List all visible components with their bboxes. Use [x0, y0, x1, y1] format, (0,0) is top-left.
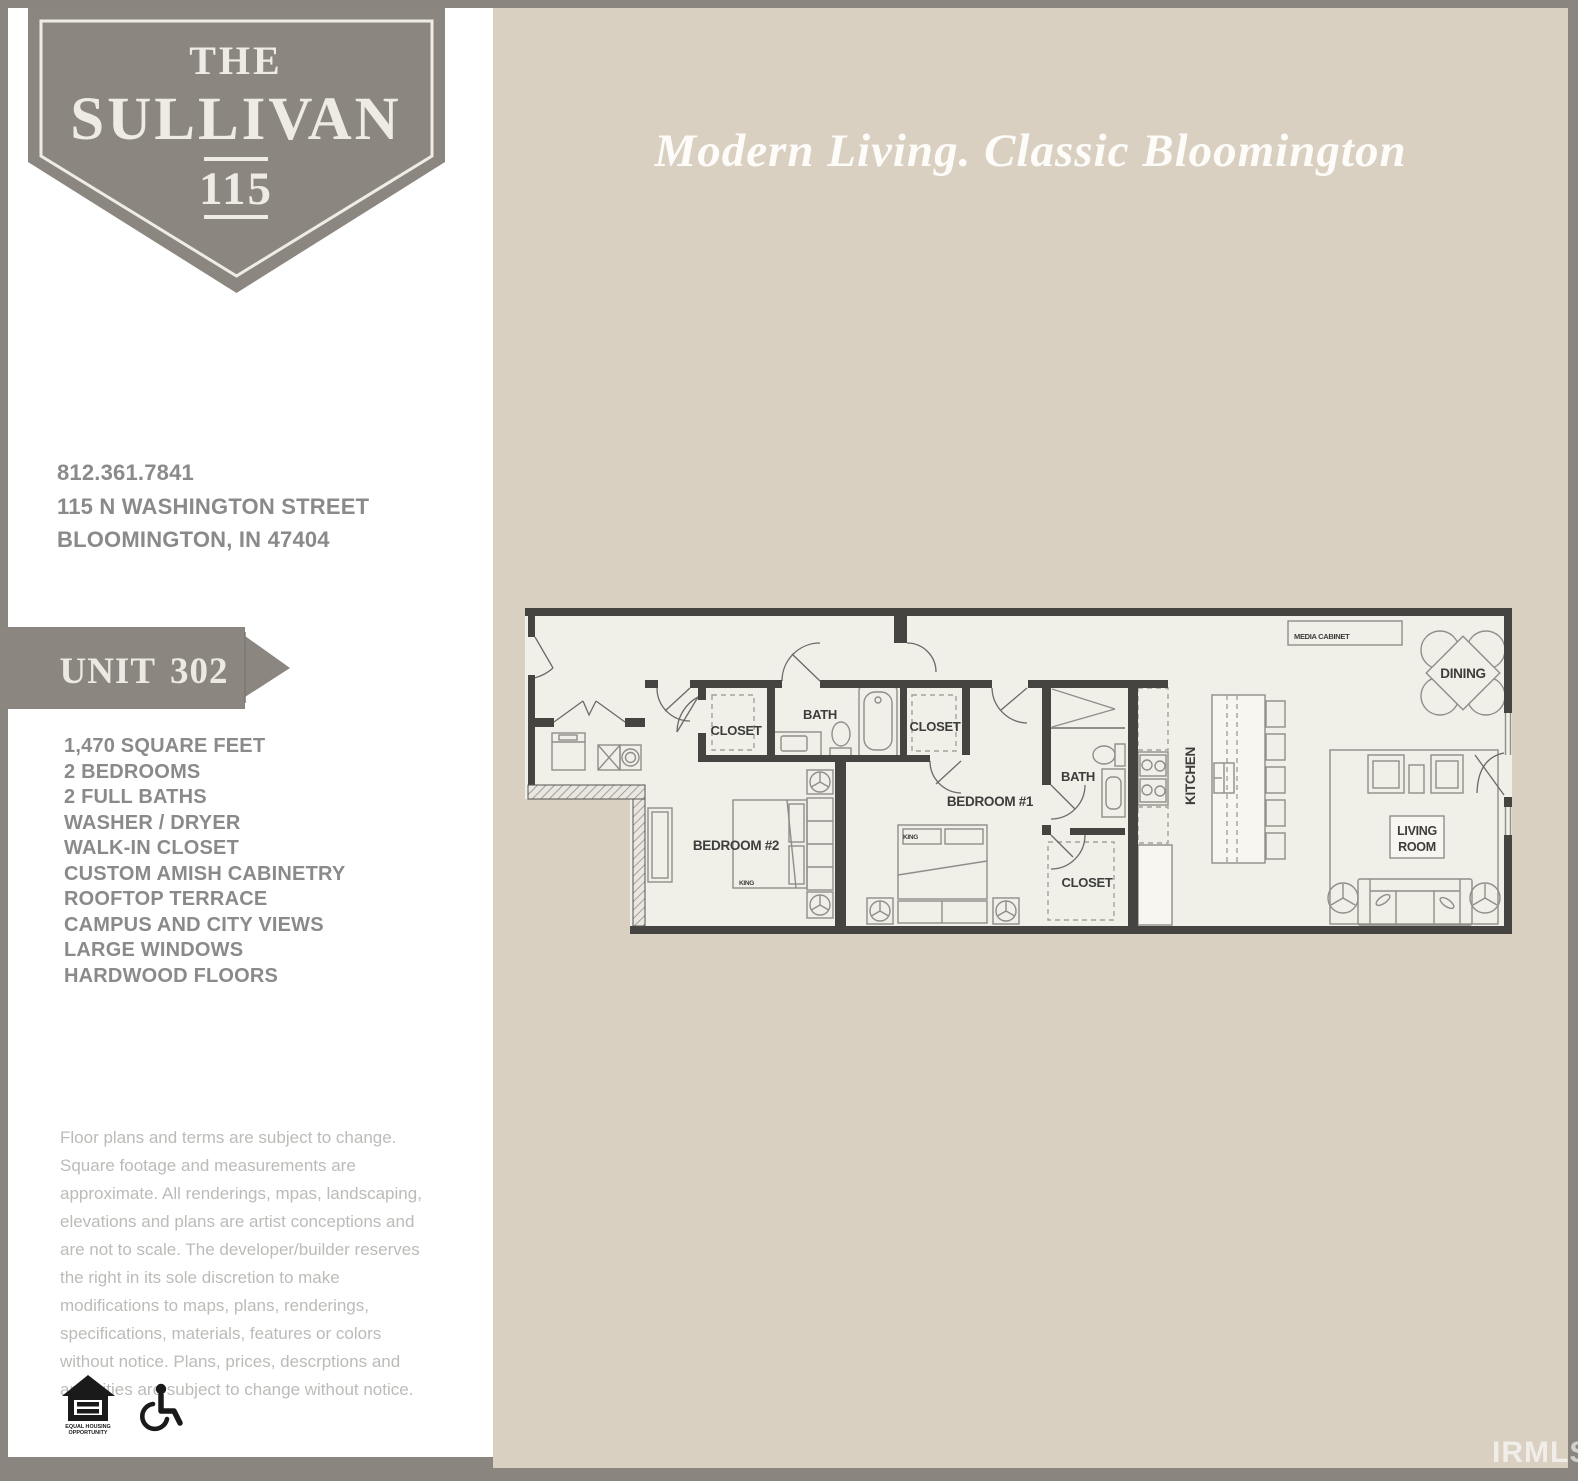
accessibility-icon — [136, 1382, 188, 1434]
eho-roof — [62, 1375, 115, 1396]
feature-item: LARGE WINDOWS — [64, 938, 345, 964]
bath1-label: BATH — [1061, 769, 1095, 784]
closet1-label: CLOSET — [910, 719, 961, 734]
badge-sullivan: SULLIVAN — [70, 86, 401, 153]
contact-phone: 812.361.7841 — [57, 456, 369, 490]
badge-the: THE — [189, 38, 282, 83]
eho-text-line2: OPPORTUNITY — [69, 1430, 108, 1436]
feature-item: 2 BEDROOMS — [64, 760, 345, 786]
walkin-closet-label: CLOSET — [1062, 875, 1113, 890]
equal-housing-icon: EQUAL HOUSING OPPORTUNITY — [60, 1374, 118, 1438]
unit-number: 302 — [170, 651, 229, 692]
feature-item: 2 FULL BATHS — [64, 785, 345, 811]
living-label-line1: LIVING — [1397, 824, 1437, 838]
king1-label: KING — [903, 834, 918, 841]
unit-banner: UNIT302 — [0, 627, 294, 711]
feature-list: 1,470 SQUARE FEET 2 BEDROOMS 2 FULL BATH… — [64, 734, 345, 989]
bedroom2-label: BEDROOM #2 — [693, 838, 779, 853]
closet2-label: CLOSET — [711, 723, 762, 738]
pantry-icon — [1138, 845, 1172, 925]
contact-address1: 115 N WASHINGTON STREET — [57, 490, 369, 524]
feature-item: WASHER / DRYER — [64, 811, 345, 837]
contact-block: 812.361.7841 115 N WASHINGTON STREET BLO… — [57, 456, 369, 557]
tagline: Modern Living. Classic Bloomington — [493, 124, 1568, 178]
feature-item: CUSTOM AMISH CABINETRY — [64, 862, 345, 888]
contact-address2: BLOOMINGTON, IN 47404 — [57, 523, 369, 557]
king2-label: KING — [739, 880, 754, 887]
brand-badge: THE SULLIVAN 115 — [28, 8, 445, 298]
unit-label: UNIT — [59, 651, 156, 692]
feature-item: 1,470 SQUARE FEET — [64, 734, 345, 760]
kitchen-label: KITCHEN — [1183, 747, 1198, 805]
unit-banner-text: UNIT302 — [59, 651, 228, 692]
feature-item: CAMPUS AND CITY VIEWS — [64, 913, 345, 939]
eho-equal-bar-top — [77, 1402, 99, 1407]
hatched-walls — [528, 785, 645, 926]
dining-label: DINING — [1440, 666, 1485, 681]
feature-item: HARDWOOD FLOORS — [64, 964, 345, 990]
kitchen-island-icon — [1212, 695, 1265, 863]
living-label-line2: ROOM — [1398, 840, 1436, 854]
media-cabinet-label: MEDIA CABINET — [1294, 632, 1350, 641]
bath2-label: BATH — [803, 707, 837, 722]
floor-plan: CLOSET BATH CLOSET BEDROOM #1 BEDROOM #2… — [515, 595, 1530, 950]
bedroom1-label: BEDROOM #1 — [947, 794, 1034, 809]
badge-115: 115 — [199, 163, 273, 215]
feature-item: ROOFTOP TERRACE — [64, 887, 345, 913]
irmls-watermark: IRMLS — [1492, 1436, 1578, 1470]
feature-item: WALK-IN CLOSET — [64, 836, 345, 862]
eho-equal-bar-bottom — [77, 1409, 99, 1414]
flyer-page: THE SULLIVAN 115 Modern Living. Classic … — [0, 0, 1578, 1481]
disclaimer-text: Floor plans and terms are subject to cha… — [60, 1124, 432, 1404]
wheelchair-body — [161, 1395, 180, 1423]
badge-rule-bottom — [204, 215, 268, 219]
floor-area — [525, 608, 1512, 934]
badge-rule-top — [204, 157, 268, 161]
